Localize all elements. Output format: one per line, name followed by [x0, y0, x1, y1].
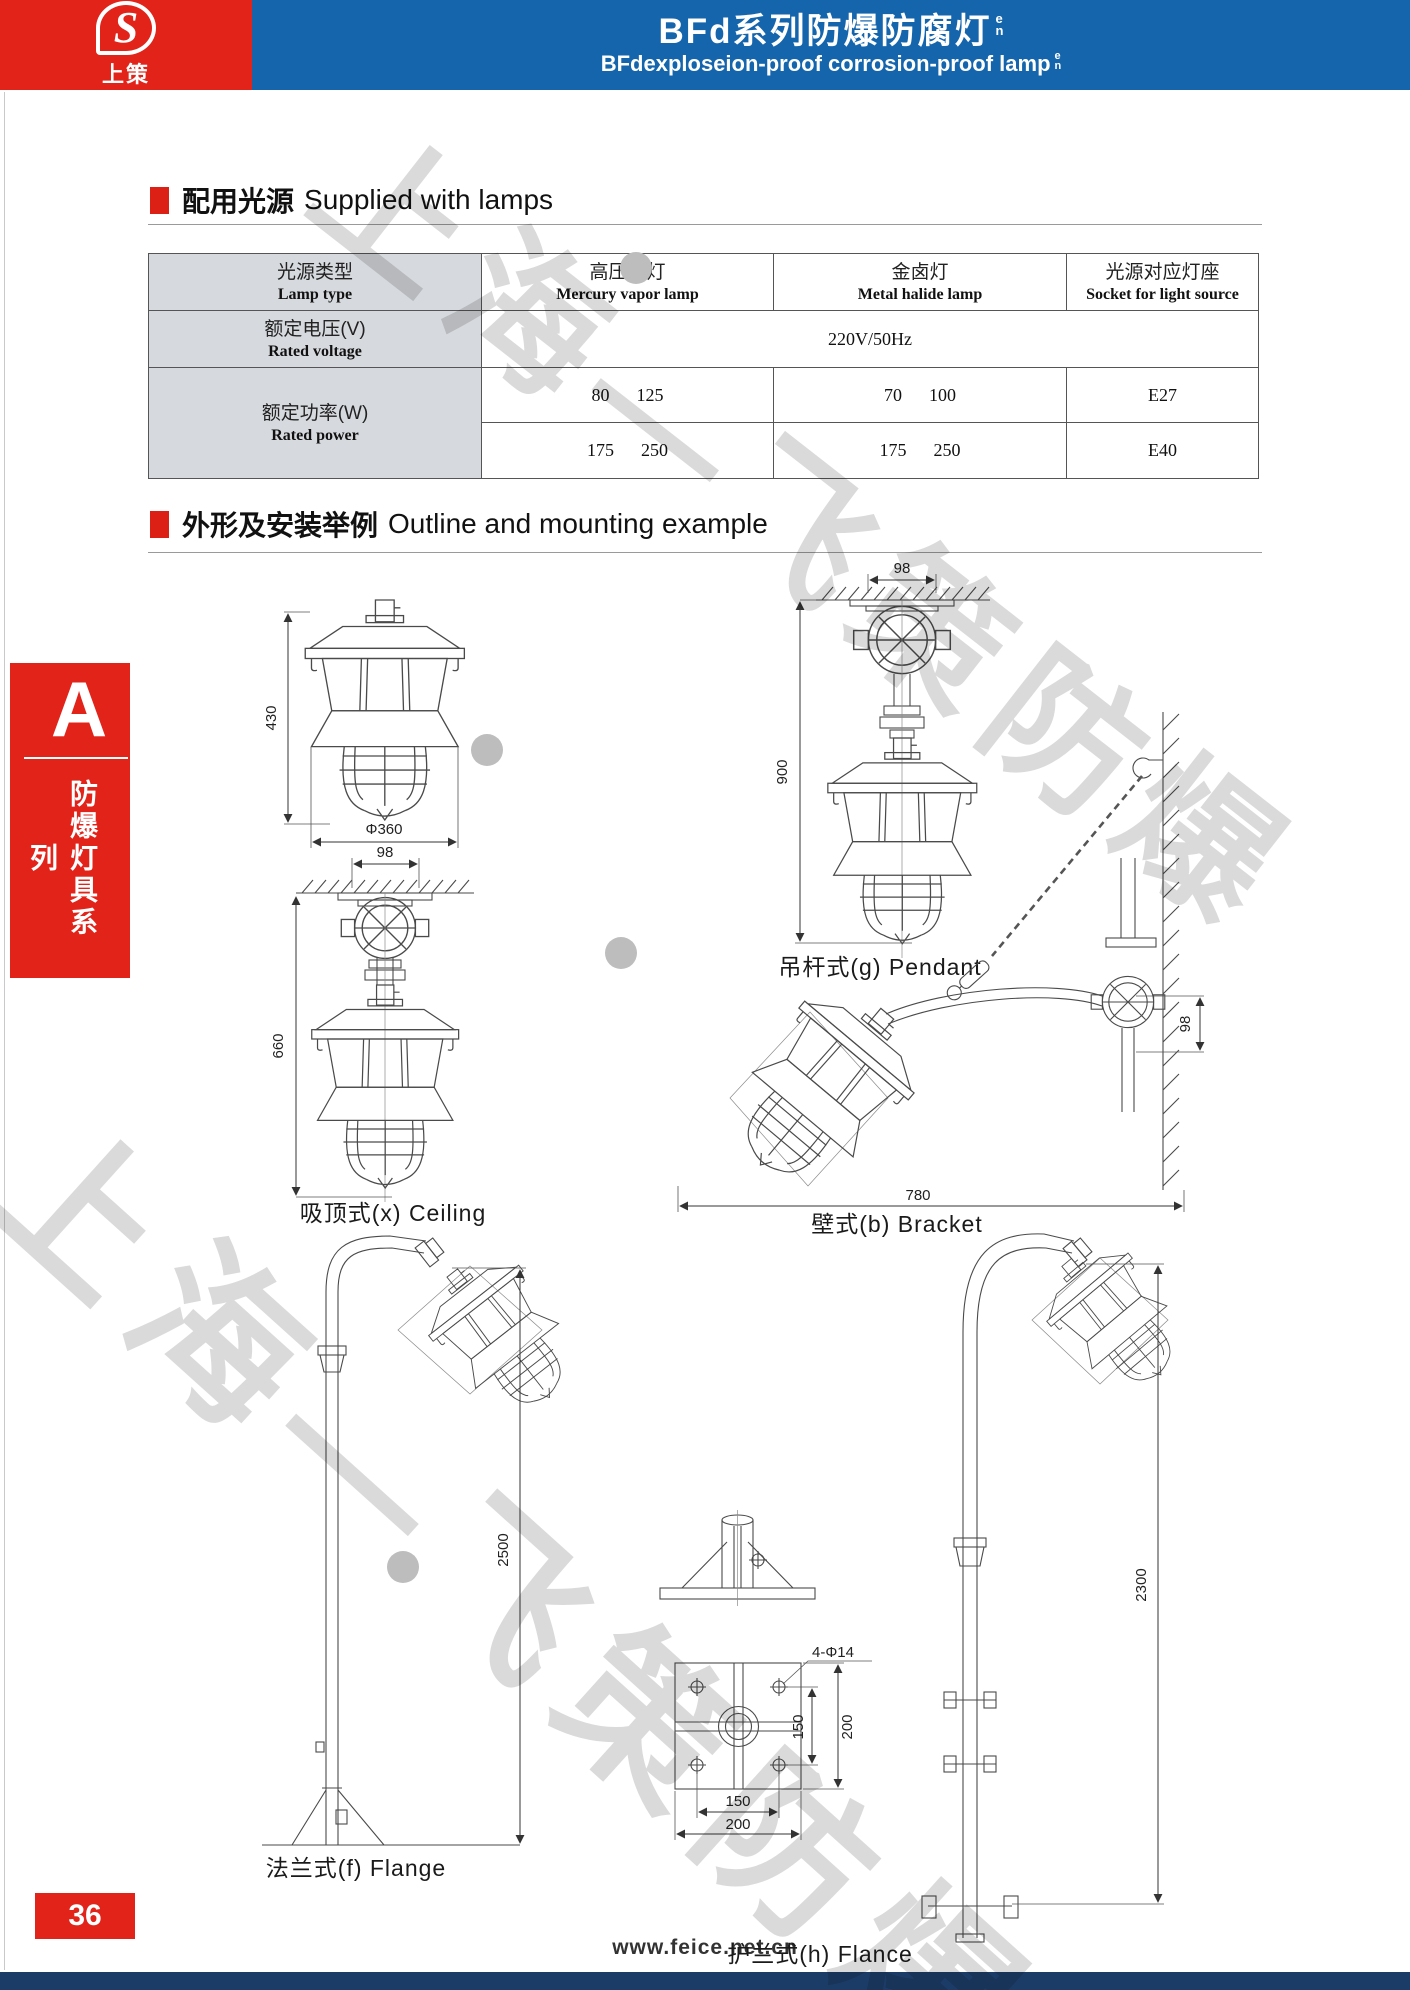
- caption-pendant: 吊杆式(g) Pendant: [778, 954, 981, 980]
- pendant-drawing: 98 900 吊杆式(g) Pendant: [774, 560, 990, 980]
- caption-flance: 护兰式(h) Flance: [727, 1941, 913, 1967]
- ceiling-drawing: 98 660 吸顶式(x) Ceiling: [270, 844, 486, 1226]
- dim-flange-height: 2500: [495, 1533, 512, 1566]
- dim-pendant-height: 900: [774, 759, 791, 784]
- dim-outline-diameter: Φ360: [366, 821, 403, 838]
- flange-drawing: 2500 法兰式(f) Flange: [262, 1236, 595, 1881]
- dim-bracket-span: 780: [905, 1187, 930, 1204]
- dim-base-outer-v: 200: [839, 1714, 856, 1739]
- outline-drawing: 430 Φ360: [263, 600, 464, 848]
- caption-flange: 法兰式(f) Flange: [266, 1855, 446, 1881]
- label-base-holes: 4-Φ14: [812, 1644, 854, 1661]
- dim-base-inner-h: 150: [725, 1793, 750, 1810]
- dim-pendant-width: 98: [894, 560, 911, 577]
- catalog-page: 上海—飞策防爆 上海—飞策防爆 S 上策 BFd系列防爆防腐灯 e n BFde…: [0, 0, 1410, 1990]
- dim-ceiling-width: 98: [377, 844, 394, 861]
- base-plate-drawing: 4-Φ14 150 200 150 200: [660, 1510, 872, 1840]
- dim-outline-height: 430: [263, 705, 280, 730]
- dim-ceiling-height: 660: [270, 1033, 287, 1058]
- technical-drawings: 430 Φ360 98 660 吸顶式(x) Ceiling: [0, 0, 1410, 1990]
- dim-bracket-offset: 98: [1177, 1016, 1194, 1033]
- dim-base-inner-v: 150: [790, 1714, 807, 1739]
- dim-flance-height: 2300: [1133, 1568, 1150, 1601]
- caption-bracket: 壁式(b) Bracket: [811, 1211, 982, 1237]
- dim-base-outer-h: 200: [725, 1816, 750, 1833]
- flance-drawing: 2300 护兰式(h) Flance: [727, 1228, 1201, 1967]
- caption-ceiling: 吸顶式(x) Ceiling: [300, 1200, 487, 1226]
